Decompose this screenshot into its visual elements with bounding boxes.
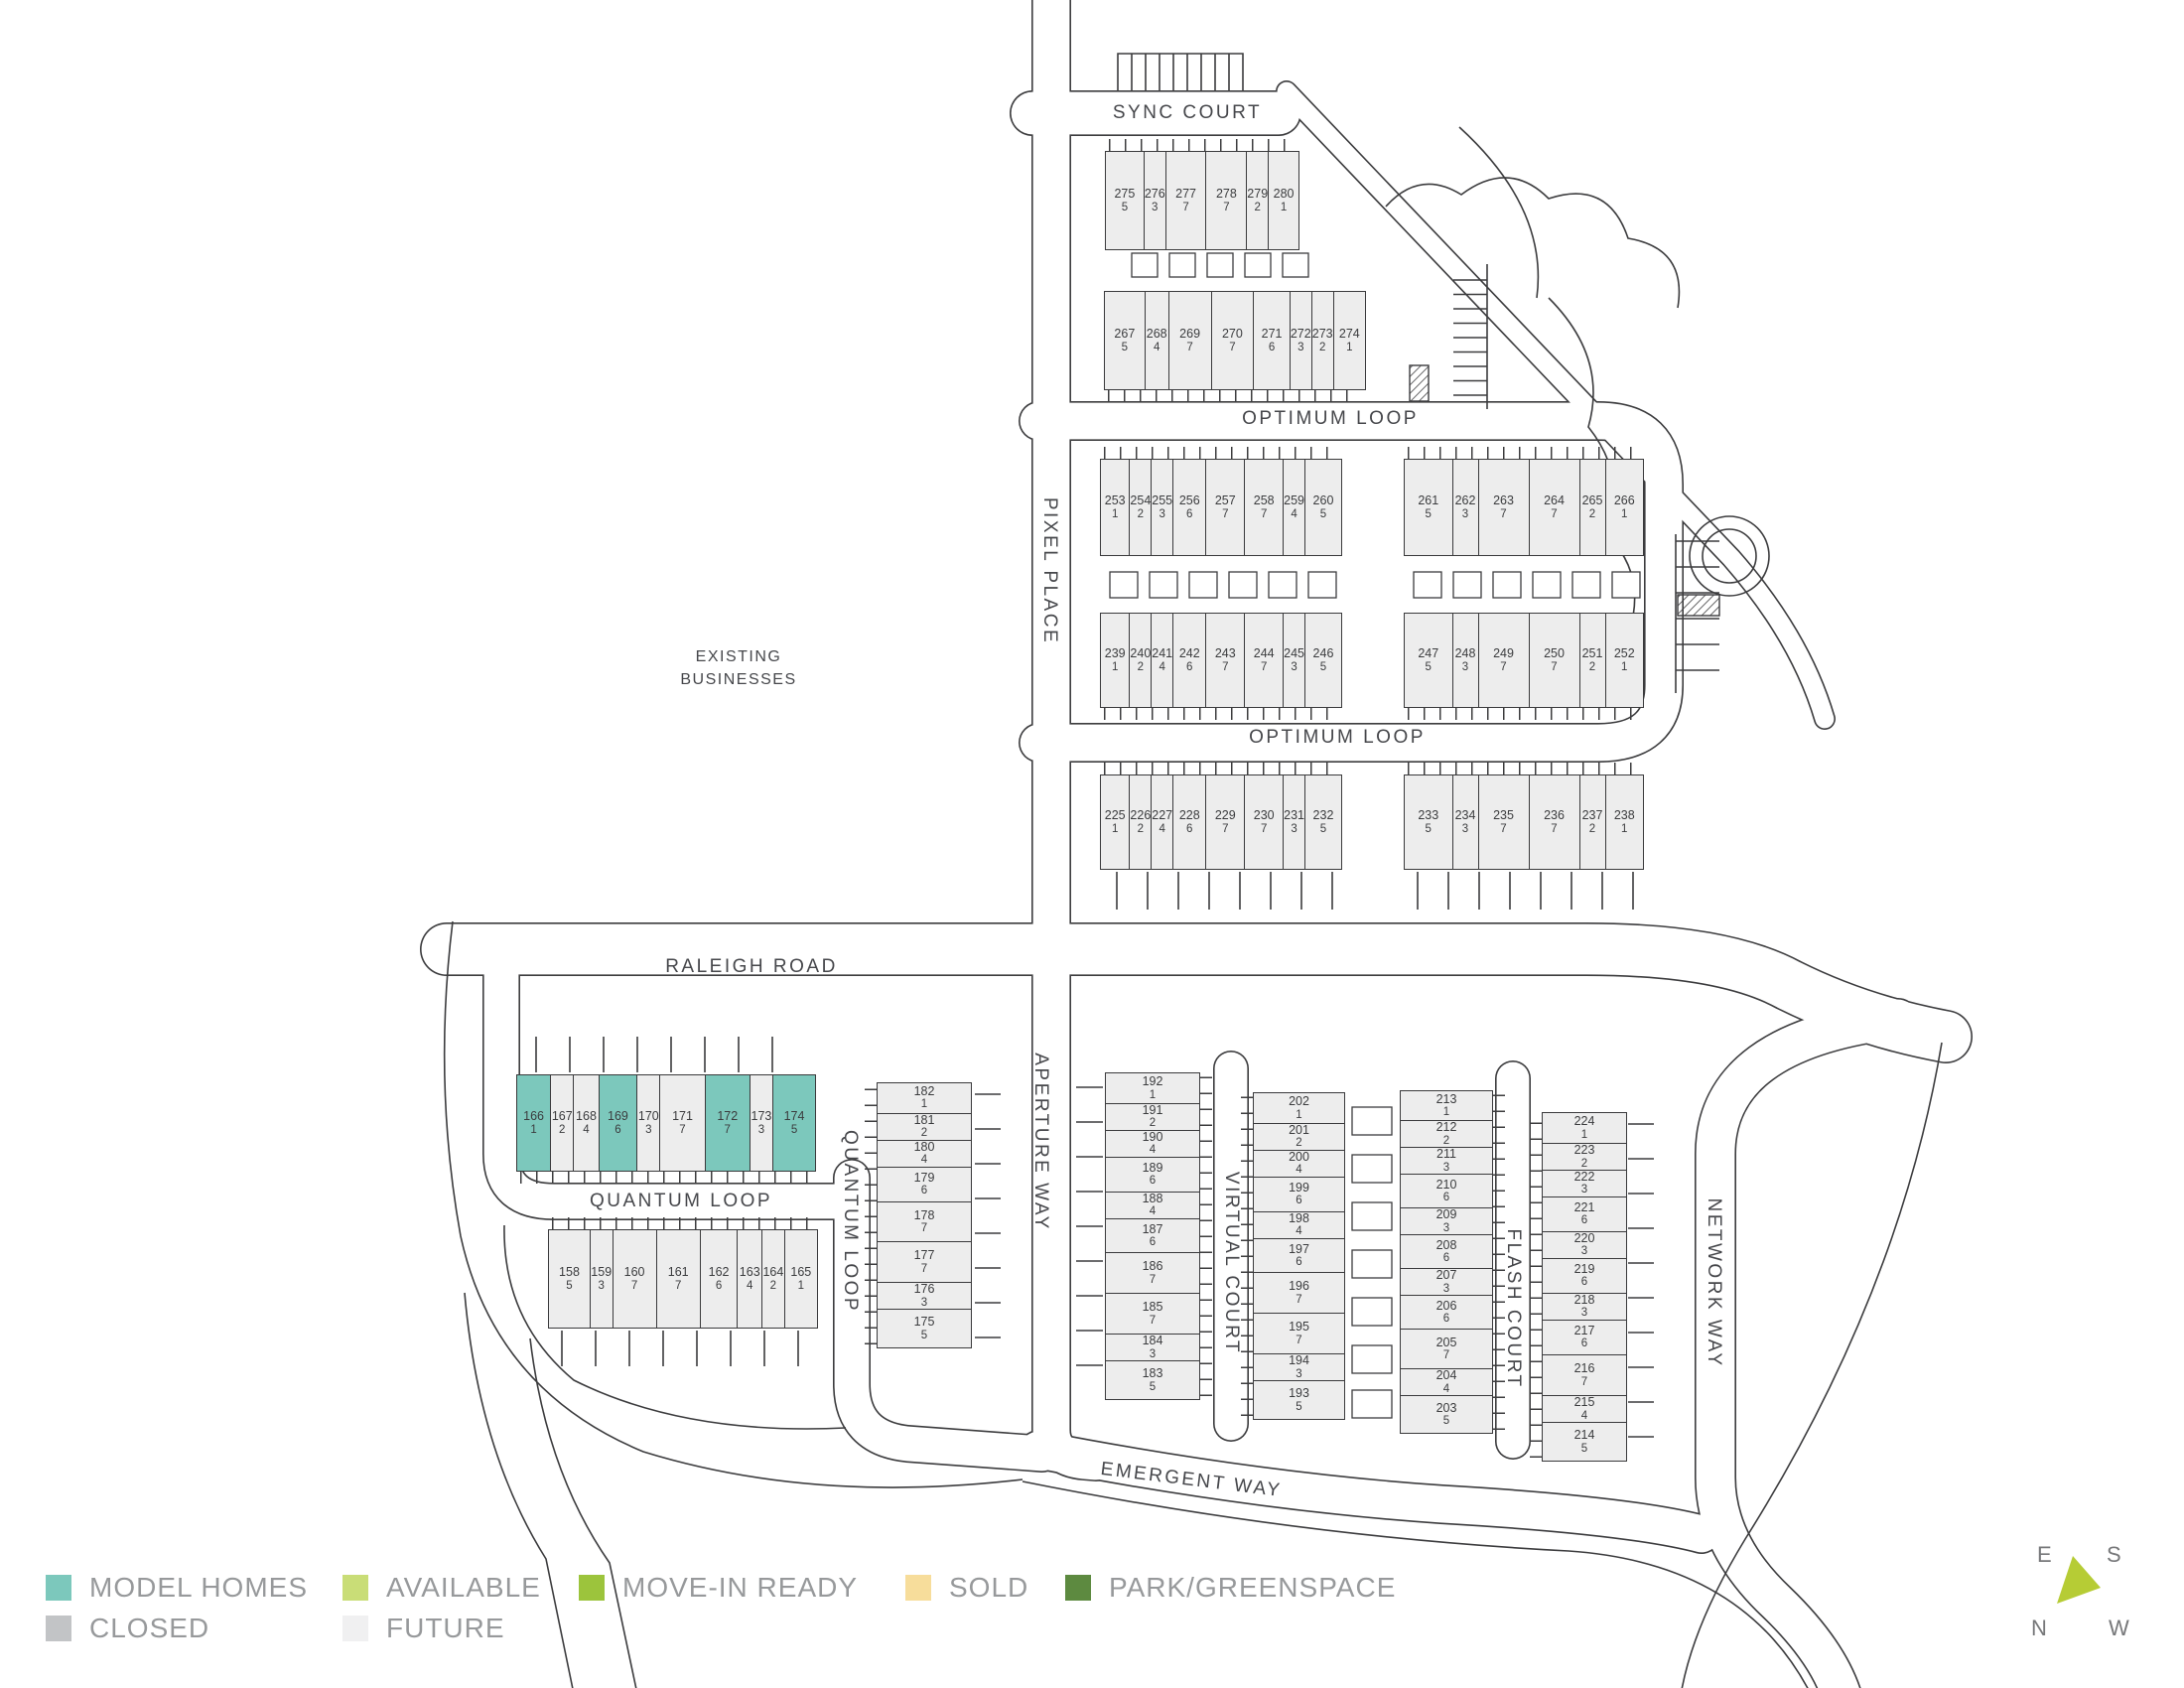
quantum-south-row: 15851593160716171626163416421651 <box>548 1229 818 1329</box>
lot-220[interactable]: 2203 <box>1542 1231 1627 1259</box>
lot-169[interactable]: 1696 <box>599 1074 638 1172</box>
lot-number: 174 <box>784 1110 805 1124</box>
driveway-ticks <box>1108 390 1362 402</box>
lot-number: 241 <box>1152 647 1172 661</box>
lot-184[interactable]: 1843 <box>1105 1334 1200 1361</box>
lot-number: 269 <box>1179 328 1200 342</box>
garage-footprint <box>1612 572 1640 598</box>
plan-number: 6 <box>1296 1195 1301 1206</box>
plan-number: 7 <box>1500 823 1506 835</box>
optimum-south-east-row: 233523432357236723722381 <box>1404 774 1644 870</box>
lot-252[interactable]: 2521 <box>1605 613 1645 708</box>
lot-number: 259 <box>1284 494 1304 508</box>
lot-number: 264 <box>1544 494 1565 508</box>
lot-183[interactable]: 1835 <box>1105 1360 1200 1400</box>
lot-253[interactable]: 2531 <box>1100 459 1130 556</box>
lot-182[interactable]: 1821 <box>877 1082 972 1114</box>
lot-number: 181 <box>914 1114 935 1128</box>
driveway-ticks <box>520 1172 812 1184</box>
plan-number: 2 <box>1319 342 1325 353</box>
lot-163[interactable]: 1634 <box>737 1229 762 1329</box>
lot-178[interactable]: 1787 <box>877 1201 972 1243</box>
lot-214[interactable]: 2145 <box>1542 1422 1627 1462</box>
lot-275[interactable]: 2755 <box>1105 151 1145 250</box>
lot-number: 247 <box>1418 647 1438 661</box>
plan-number: 5 <box>1426 823 1432 835</box>
compass-west: W <box>2109 1616 2129 1641</box>
lot-number: 170 <box>638 1110 659 1124</box>
lot-194[interactable]: 1943 <box>1253 1353 1345 1381</box>
legend-swatch-icon <box>579 1575 605 1601</box>
lot-260[interactable]: 2605 <box>1304 459 1342 556</box>
lot-197[interactable]: 1976 <box>1253 1238 1345 1274</box>
plan-number: 6 <box>1150 1175 1156 1187</box>
lot-170[interactable]: 1703 <box>636 1074 660 1172</box>
lot-number: 257 <box>1215 494 1236 508</box>
plan-number: 7 <box>1551 823 1557 835</box>
plan-number: 3 <box>758 1124 764 1136</box>
lot-243[interactable]: 2437 <box>1205 613 1245 708</box>
plan-number: 5 <box>1426 661 1432 673</box>
plan-number: 3 <box>1443 1222 1449 1234</box>
lot-241[interactable]: 2414 <box>1151 613 1173 708</box>
plan-number: 2 <box>1255 202 1261 213</box>
lot-number: 172 <box>717 1110 738 1124</box>
lot-270[interactable]: 2707 <box>1211 291 1255 390</box>
lot-228[interactable]: 2286 <box>1172 774 1206 870</box>
lot-196[interactable]: 1967 <box>1253 1272 1345 1314</box>
plan-number: 4 <box>921 1154 927 1166</box>
lot-number: 232 <box>1313 809 1334 823</box>
lot-248[interactable]: 2483 <box>1452 613 1479 708</box>
lot-172[interactable]: 1727 <box>705 1074 751 1172</box>
legend-label: MOVE-IN READY <box>622 1572 858 1604</box>
lot-number: 189 <box>1143 1162 1163 1176</box>
lot-198[interactable]: 1984 <box>1253 1211 1345 1239</box>
lot-number: 243 <box>1215 647 1236 661</box>
lot-number: 226 <box>1130 809 1151 823</box>
lot-273[interactable]: 2732 <box>1311 291 1334 390</box>
lot-number: 178 <box>914 1209 935 1223</box>
lot-number: 265 <box>1582 494 1603 508</box>
lot-245[interactable]: 2453 <box>1283 613 1305 708</box>
lot-number: 186 <box>1143 1260 1163 1274</box>
garage-footprint <box>1352 1250 1392 1278</box>
plan-number: 6 <box>614 1124 620 1136</box>
garage-footprint <box>1533 572 1561 598</box>
lot-266[interactable]: 2661 <box>1605 459 1645 556</box>
lot-number: 231 <box>1284 809 1304 823</box>
lot-number: 193 <box>1289 1387 1309 1401</box>
lot-234[interactable]: 2343 <box>1452 774 1479 870</box>
garage-footprint <box>1352 1345 1392 1373</box>
lot-number: 216 <box>1574 1362 1595 1376</box>
lot-213[interactable]: 2131 <box>1400 1090 1493 1121</box>
plan-number: 7 <box>1551 508 1557 520</box>
plan-number: 6 <box>1581 1337 1587 1349</box>
lot-216[interactable]: 2167 <box>1542 1354 1627 1396</box>
plan-number: 3 <box>1150 1348 1156 1360</box>
optimum-south-west-row: 22512262227422862297230723132325 <box>1100 774 1342 870</box>
plan-number: 1 <box>1112 661 1118 673</box>
lot-number: 211 <box>1436 1148 1456 1162</box>
plan-number: 7 <box>921 1263 927 1275</box>
legend-item-closed: CLOSED <box>46 1613 209 1644</box>
lot-219[interactable]: 2196 <box>1542 1258 1627 1294</box>
lot-207[interactable]: 2073 <box>1400 1268 1493 1296</box>
lot-210[interactable]: 2106 <box>1400 1174 1493 1208</box>
plan-number: 5 <box>566 1280 572 1292</box>
plan-number: 3 <box>1297 342 1303 353</box>
lot-247[interactable]: 2475 <box>1404 613 1453 708</box>
street-label-virtual-court: VIRTUAL COURT <box>1220 1172 1242 1354</box>
lot-number: 200 <box>1289 1151 1309 1165</box>
lot-218[interactable]: 2183 <box>1542 1293 1627 1321</box>
lot-231[interactable]: 2313 <box>1283 774 1305 870</box>
garage-footprint <box>1352 1155 1392 1183</box>
lot-236[interactable]: 2367 <box>1529 774 1580 870</box>
lot-number: 245 <box>1284 647 1304 661</box>
garage-footprint <box>1352 1202 1392 1230</box>
lot-202[interactable]: 2021 <box>1253 1092 1345 1124</box>
lot-number: 160 <box>624 1266 645 1280</box>
plan-number: 4 <box>1150 1205 1156 1217</box>
lot-230[interactable]: 2307 <box>1244 774 1284 870</box>
street-label-network-way: NETWORK WAY <box>1703 1197 1724 1367</box>
lot-211[interactable]: 2113 <box>1400 1147 1493 1175</box>
plan-number: 7 <box>1443 1349 1449 1361</box>
plan-number: 6 <box>716 1280 722 1292</box>
lot-181[interactable]: 1812 <box>877 1113 972 1141</box>
lot-240[interactable]: 2402 <box>1129 613 1152 708</box>
lot-168[interactable]: 1684 <box>573 1074 599 1172</box>
lot-number: 196 <box>1289 1280 1309 1294</box>
plan-number: 3 <box>1581 1245 1587 1257</box>
plan-number: 3 <box>645 1124 651 1136</box>
plan-number: 5 <box>1320 508 1326 520</box>
lot-251[interactable]: 2512 <box>1579 613 1606 708</box>
plan-number: 4 <box>1154 342 1160 353</box>
lot-223[interactable]: 2232 <box>1542 1143 1627 1171</box>
driveway-ticks <box>1104 447 1338 459</box>
lot-number: 251 <box>1582 647 1603 661</box>
optimum-mid-west-lower: 23912402241424262437244724532465 <box>1100 613 1342 708</box>
driveway-ticks <box>1408 763 1640 774</box>
plan-number: 2 <box>1138 823 1144 835</box>
lot-173[interactable]: 1733 <box>750 1074 773 1172</box>
plan-number: 3 <box>921 1297 927 1309</box>
lot-195[interactable]: 1957 <box>1253 1313 1345 1354</box>
lot-239[interactable]: 2391 <box>1100 613 1130 708</box>
lot-227[interactable]: 2274 <box>1151 774 1173 870</box>
lot-number: 209 <box>1436 1208 1457 1222</box>
lot-number: 238 <box>1614 809 1635 823</box>
plan-number: 4 <box>1160 823 1165 835</box>
lot-number: 277 <box>1175 188 1196 202</box>
lot-232[interactable]: 2325 <box>1304 774 1342 870</box>
street-label-quantum-loop: QUANTUM LOOP <box>590 1191 772 1212</box>
plan-number: 7 <box>1222 823 1228 835</box>
lot-number: 223 <box>1574 1144 1595 1158</box>
plan-number: 7 <box>1229 342 1235 353</box>
plan-number: 1 <box>1281 202 1287 213</box>
lot-number: 253 <box>1105 494 1126 508</box>
plan-number: 2 <box>559 1124 565 1136</box>
compass-arrow-icon <box>2015 1534 2154 1663</box>
street-label-pixel-place: PIXEL PLACE <box>1038 497 1060 644</box>
lot-199[interactable]: 1996 <box>1253 1177 1345 1212</box>
lot-number: 210 <box>1436 1179 1457 1193</box>
lot-193[interactable]: 1935 <box>1253 1380 1345 1420</box>
garage-footprint <box>1245 253 1271 277</box>
plan-number: 7 <box>1186 342 1192 353</box>
lot-250[interactable]: 2507 <box>1529 613 1580 708</box>
lot-258[interactable]: 2587 <box>1244 459 1284 556</box>
plan-number: 1 <box>1581 1129 1587 1141</box>
lot-235[interactable]: 2357 <box>1478 774 1530 870</box>
lot-189[interactable]: 1896 <box>1105 1157 1200 1193</box>
lot-242[interactable]: 2426 <box>1172 613 1206 708</box>
lot-number: 208 <box>1436 1239 1457 1253</box>
lot-263[interactable]: 2637 <box>1478 459 1530 556</box>
lot-number: 258 <box>1254 494 1275 508</box>
lot-212[interactable]: 2122 <box>1400 1120 1493 1148</box>
lot-number: 268 <box>1147 328 1167 342</box>
road-surface-9 <box>1715 1019 1898 1688</box>
lot-190[interactable]: 1904 <box>1105 1130 1200 1158</box>
legend-label: SOLD <box>949 1572 1028 1604</box>
plan-number: 7 <box>1296 1294 1301 1306</box>
lot-272[interactable]: 2723 <box>1290 291 1312 390</box>
driveway-ticks <box>1200 1076 1212 1396</box>
lot-188[interactable]: 1884 <box>1105 1192 1200 1219</box>
hatched-kiosk-0 <box>1410 365 1429 401</box>
plan-number: 3 <box>1160 508 1165 520</box>
plan-number: 5 <box>791 1124 797 1136</box>
lot-204[interactable]: 2044 <box>1400 1368 1493 1396</box>
lot-225[interactable]: 2251 <box>1100 774 1130 870</box>
street-label-optimum-loop-south: OPTIMUM LOOP <box>1249 727 1426 749</box>
lot-number: 197 <box>1289 1243 1309 1257</box>
lot-number: 165 <box>790 1266 811 1280</box>
lot-249[interactable]: 2497 <box>1478 613 1530 708</box>
plan-number: 3 <box>1296 1368 1301 1380</box>
lot-number: 266 <box>1614 494 1635 508</box>
lot-166[interactable]: 1661 <box>516 1074 551 1172</box>
lot-262[interactable]: 2623 <box>1452 459 1479 556</box>
legend-swatch-icon <box>1065 1575 1091 1601</box>
plan-number: 6 <box>1186 661 1192 673</box>
lot-171[interactable]: 1717 <box>659 1074 705 1172</box>
lot-259[interactable]: 2594 <box>1283 459 1305 556</box>
lot-217[interactable]: 2176 <box>1542 1320 1627 1355</box>
lot-number: 176 <box>914 1283 935 1297</box>
lot-number: 173 <box>751 1110 772 1124</box>
lot-174[interactable]: 1745 <box>772 1074 816 1172</box>
lot-number: 271 <box>1262 328 1283 342</box>
lot-186[interactable]: 1867 <box>1105 1252 1200 1294</box>
lot-164[interactable]: 1642 <box>761 1229 785 1329</box>
lot-180[interactable]: 1804 <box>877 1140 972 1168</box>
lot-167[interactable]: 1672 <box>550 1074 574 1172</box>
lot-number: 158 <box>559 1266 580 1280</box>
driveway-ticks <box>1109 139 1296 151</box>
lot-261[interactable]: 2615 <box>1404 459 1453 556</box>
lot-number: 205 <box>1436 1336 1457 1350</box>
lot-number: 276 <box>1145 188 1165 202</box>
street-label-quantum-loop-vertical: QUANTUM LOOP <box>839 1130 861 1313</box>
lot-268[interactable]: 2684 <box>1145 291 1169 390</box>
plan-number: 3 <box>1443 1283 1449 1295</box>
flash-west-column: 2131212221132106209320862073206620572044… <box>1400 1090 1493 1434</box>
lot-number: 162 <box>709 1266 730 1280</box>
street-label-raleigh-road: RALEIGH ROAD <box>665 956 838 978</box>
lot-number: 260 <box>1313 494 1334 508</box>
plan-number: 5 <box>921 1330 927 1341</box>
lot-257[interactable]: 2577 <box>1205 459 1245 556</box>
lot-264[interactable]: 2647 <box>1529 459 1580 556</box>
lot-233[interactable]: 2335 <box>1404 774 1453 870</box>
lot-number: 169 <box>608 1110 628 1124</box>
lot-222[interactable]: 2223 <box>1542 1170 1627 1197</box>
lot-number: 275 <box>1114 188 1135 202</box>
lot-number: 201 <box>1289 1124 1309 1138</box>
plan-number: 7 <box>921 1222 927 1234</box>
lot-271[interactable]: 2716 <box>1253 291 1291 390</box>
quantum-east-column: 18211812180417961787177717631755 <box>877 1082 972 1348</box>
lot-205[interactable]: 2057 <box>1400 1329 1493 1369</box>
lot-229[interactable]: 2297 <box>1205 774 1245 870</box>
lot-158[interactable]: 1585 <box>548 1229 591 1329</box>
driveway-ticks <box>1530 1116 1542 1458</box>
lot-246[interactable]: 2465 <box>1304 613 1342 708</box>
lot-165[interactable]: 1651 <box>784 1229 818 1329</box>
plan-number: 3 <box>1291 661 1297 673</box>
plan-number: 4 <box>1296 1225 1301 1237</box>
lot-number: 250 <box>1544 647 1565 661</box>
lot-255[interactable]: 2553 <box>1151 459 1173 556</box>
lot-number: 233 <box>1418 809 1438 823</box>
lot-280[interactable]: 2801 <box>1268 151 1299 250</box>
plan-number: 6 <box>1443 1192 1449 1203</box>
driveway-ticks <box>1104 763 1338 774</box>
lot-215[interactable]: 2154 <box>1542 1395 1627 1423</box>
plan-number: 1 <box>530 1124 536 1136</box>
lot-number: 272 <box>1291 328 1311 342</box>
lot-269[interactable]: 2697 <box>1168 291 1212 390</box>
lot-175[interactable]: 1755 <box>877 1309 972 1348</box>
lot-number: 227 <box>1152 809 1172 823</box>
street-label-flash-court: FLASH COURT <box>1502 1228 1524 1388</box>
lot-237[interactable]: 2372 <box>1579 774 1606 870</box>
lot-number: 185 <box>1143 1301 1163 1315</box>
driveway-ticks <box>552 1217 814 1229</box>
lot-179[interactable]: 1796 <box>877 1167 972 1202</box>
flash-east-column: 2241223222232216220321962183217621672154… <box>1542 1112 1627 1462</box>
lot-185[interactable]: 1857 <box>1105 1293 1200 1335</box>
lot-176[interactable]: 1763 <box>877 1282 972 1310</box>
lot-162[interactable]: 1626 <box>700 1229 739 1329</box>
legend-label: PARK/GREENSPACE <box>1109 1572 1396 1604</box>
lot-226[interactable]: 2262 <box>1129 774 1152 870</box>
lot-244[interactable]: 2447 <box>1244 613 1284 708</box>
plan-number: 3 <box>599 1280 605 1292</box>
lot-161[interactable]: 1617 <box>656 1229 701 1329</box>
lot-254[interactable]: 2542 <box>1129 459 1152 556</box>
lot-number: 255 <box>1152 494 1172 508</box>
lot-278[interactable]: 2787 <box>1205 151 1247 250</box>
hatched-kiosk-1 <box>1678 595 1719 616</box>
plan-number: 1 <box>1346 342 1352 353</box>
lot-224[interactable]: 2241 <box>1542 1112 1627 1144</box>
garage-footprint <box>1150 572 1177 598</box>
garage-footprint <box>1453 572 1481 598</box>
lot-number: 164 <box>762 1266 783 1280</box>
lot-221[interactable]: 2216 <box>1542 1196 1627 1232</box>
lot-187[interactable]: 1876 <box>1105 1218 1200 1254</box>
lot-number: 273 <box>1312 328 1333 342</box>
lot-276[interactable]: 2763 <box>1144 151 1166 250</box>
plan-number: 1 <box>798 1280 804 1292</box>
lot-number: 270 <box>1222 328 1243 342</box>
lot-number: 220 <box>1574 1232 1595 1246</box>
plan-number: 6 <box>921 1185 927 1196</box>
lot-177[interactable]: 1777 <box>877 1241 972 1283</box>
plan-number: 1 <box>921 1098 927 1110</box>
plan-number: 1 <box>1621 508 1627 520</box>
lot-267[interactable]: 2675 <box>1104 291 1146 390</box>
garage-footprint <box>1132 253 1158 277</box>
lot-274[interactable]: 2741 <box>1333 291 1366 390</box>
compass-north: N <box>2031 1616 2047 1641</box>
lot-201[interactable]: 2012 <box>1253 1123 1345 1151</box>
garage-footprint <box>1352 1390 1392 1418</box>
plan-number: 7 <box>1223 202 1229 213</box>
lot-206[interactable]: 2066 <box>1400 1295 1493 1330</box>
quantum-north-row: 166116721684169617031717172717331745 <box>516 1074 816 1172</box>
lot-200[interactable]: 2004 <box>1253 1150 1345 1178</box>
garage-footprint <box>1493 572 1521 598</box>
lot-159[interactable]: 1593 <box>590 1229 614 1329</box>
plan-number: 2 <box>1581 1158 1587 1170</box>
lot-209[interactable]: 2093 <box>1400 1207 1493 1235</box>
plan-number: 4 <box>1443 1383 1449 1395</box>
lot-160[interactable]: 1607 <box>613 1229 657 1329</box>
lot-279[interactable]: 2792 <box>1246 151 1269 250</box>
plan-number: 2 <box>921 1127 927 1139</box>
legend-label: AVAILABLE <box>386 1572 541 1604</box>
virtual-west-column: 1921191219041896188418761867185718431835 <box>1105 1072 1200 1400</box>
legend-swatch-icon <box>46 1616 71 1641</box>
lot-number: 263 <box>1493 494 1514 508</box>
plan-number: 2 <box>1150 1117 1156 1129</box>
lot-208[interactable]: 2086 <box>1400 1234 1493 1269</box>
lot-277[interactable]: 2777 <box>1165 151 1207 250</box>
driveway-ticks <box>1408 708 1640 720</box>
plan-number: 4 <box>583 1124 589 1136</box>
lot-number: 249 <box>1493 647 1514 661</box>
lot-256[interactable]: 2566 <box>1172 459 1206 556</box>
lot-238[interactable]: 2381 <box>1605 774 1645 870</box>
lot-191[interactable]: 1912 <box>1105 1103 1200 1131</box>
lot-265[interactable]: 2652 <box>1579 459 1606 556</box>
lot-number: 183 <box>1143 1367 1163 1381</box>
lot-203[interactable]: 2035 <box>1400 1395 1493 1434</box>
street-label-optimum-loop-north: OPTIMUM LOOP <box>1242 408 1419 430</box>
legend-swatch-icon <box>46 1575 71 1601</box>
optimum-mid-west-upper: 25312542255325662577258725942605 <box>1100 459 1342 556</box>
lot-192[interactable]: 1921 <box>1105 1072 1200 1104</box>
